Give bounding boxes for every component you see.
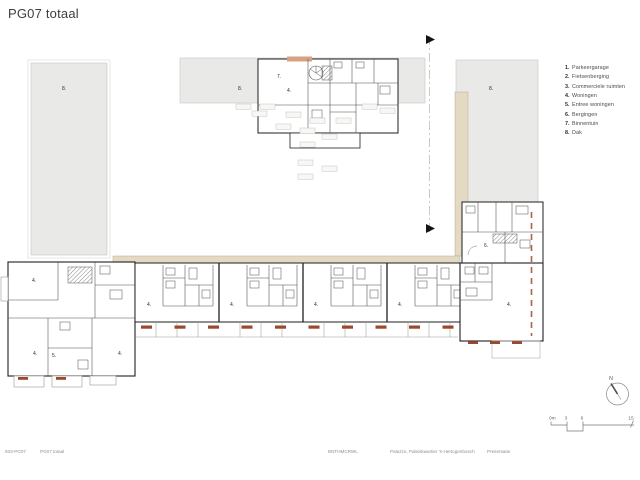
stair-hatch [322, 66, 332, 80]
room-label-8: 8. [238, 86, 242, 92]
room-label-4: 4. [398, 302, 402, 308]
legend-item-number: 8. [565, 130, 572, 136]
wing-building [462, 202, 543, 263]
stair-hatch [68, 267, 92, 283]
scale-tick-label: 6 [581, 416, 584, 422]
drawing-sheet: PG07 totaal [0, 0, 640, 480]
stair-hatch [493, 234, 517, 243]
room-label-4: 4. [230, 302, 234, 308]
legend-item-number: 6. [565, 112, 572, 118]
legend-item-number: 7. [565, 121, 572, 127]
footer-doc-code: 933-PG07 [5, 449, 26, 454]
legend-item-4: 4.Woningen [565, 93, 625, 102]
north-label: N [609, 376, 613, 382]
section-arrow-icon [426, 224, 435, 233]
legend-item-5: 5.Entree woningen [565, 102, 625, 111]
roof-left [31, 63, 107, 255]
legend-item-label: Woningen [572, 93, 597, 99]
room-label-4: 4. [314, 302, 318, 308]
room-label-4: 4. [507, 302, 511, 308]
legend-item-6: 6.Bergingen [565, 112, 625, 121]
legend-item-label: Entree woningen [572, 102, 614, 108]
legend-item-label: Commerciele ruimten [572, 84, 625, 90]
legend-item-number: 2. [565, 74, 572, 80]
footer-phase: Presentatie [487, 449, 510, 454]
scale-tick-label: 0m [549, 416, 556, 422]
legend-item-8: 8.Dak [565, 130, 625, 139]
scale-bar: 0m3615 [549, 416, 634, 432]
room-label-5: 5. [52, 353, 56, 359]
room-label-4: 4. [33, 351, 37, 357]
room-label-4: 4. [118, 351, 122, 357]
legend-item-label: Parkeergarage [572, 65, 609, 71]
legend-item-2: 2.Fietsenberging [565, 74, 625, 83]
legend-item-number: 3. [565, 84, 572, 90]
balcony-dividers [156, 322, 450, 337]
left-building [1, 262, 135, 387]
north-arrow: N [607, 376, 629, 405]
legend-item-number: 5. [565, 102, 572, 108]
footer-project: Palazzo, Paleiskwartier 's-Hertogenbosch [390, 449, 475, 454]
legend-item-number: 1. [565, 65, 572, 71]
footer-doc-title: PG07 totaal [40, 449, 64, 454]
legend-item-label: Dak [572, 130, 582, 136]
room-label-4: 4. [32, 278, 36, 284]
scale-tick-label: 3 [565, 416, 568, 422]
room-label-4: 4. [287, 88, 291, 94]
legend-item-7: 7.Binnentuin [565, 121, 625, 130]
legend-item-3: 3.Commerciele ruimten [565, 84, 625, 93]
legend-item-1: 1.Parkeergarage [565, 65, 625, 74]
legend: 1.Parkeergarage2.Fietsenberging3.Commerc… [565, 65, 625, 140]
legend-item-number: 4. [565, 93, 572, 99]
room-label-8: 8. [62, 86, 66, 92]
legend-item-label: Fietsenberging [572, 74, 609, 80]
legend-item-label: Bergingen [572, 112, 597, 118]
north-needle-icon [611, 384, 618, 395]
room-label-7: 7. [277, 74, 281, 80]
room-label-4: 4. [147, 302, 151, 308]
gallery-horizontal [113, 256, 460, 263]
scale-tick-label: 15 [628, 416, 634, 422]
room-label-6: 6. [484, 243, 488, 249]
floor-plan: 8.8.8.7.4.4.4.4.5.4.4.4.4.4.6. N 0m3615 [0, 0, 640, 480]
section-arrow-icon [426, 35, 435, 44]
legend-item-label: Binnentuin [572, 121, 598, 127]
footer-firm: BNTHMCRWL [328, 449, 358, 454]
section-line [426, 35, 435, 233]
roof-right [456, 60, 538, 202]
room-label-8: 8. [489, 86, 493, 92]
